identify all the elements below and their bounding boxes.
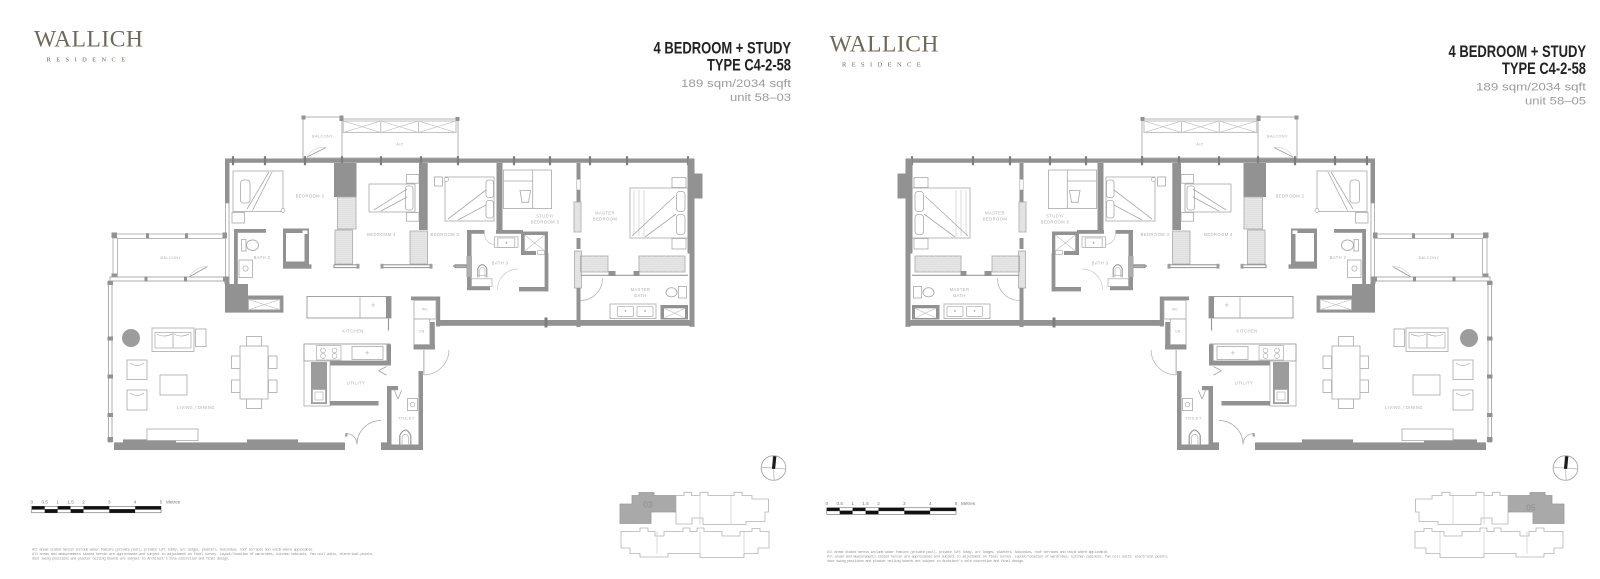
svg-text:unit 58–05: unit 58–05 — [1525, 96, 1586, 108]
svg-text:BALCONY: BALCONY — [1419, 256, 1440, 260]
svg-text:LIVING / DINING: LIVING / DINING — [1385, 405, 1423, 410]
svg-text:STUDY/: STUDY/ — [536, 214, 554, 219]
svg-text:BEDROOM 5: BEDROOM 5 — [531, 220, 560, 225]
svg-text:BEDROOM 2: BEDROOM 2 — [296, 194, 325, 199]
svg-text:STUDY/: STUDY/ — [1046, 214, 1064, 219]
svg-text:BEDROOM 5: BEDROOM 5 — [1041, 220, 1070, 225]
svg-text:BALCONY: BALCONY — [161, 256, 182, 260]
svg-text:4 BEDROOM + STUDY: 4 BEDROOM + STUDY — [1449, 43, 1587, 61]
svg-text:BEDROOM: BEDROOM — [983, 217, 1008, 222]
svg-text:TOILET: TOILET — [398, 416, 414, 421]
svg-text:BEDROOM 3: BEDROOM 3 — [1141, 232, 1170, 237]
svg-text:UTILITY: UTILITY — [1235, 381, 1253, 386]
svg-text:DB: DB — [1175, 330, 1180, 334]
svg-text:MASTER: MASTER — [950, 287, 970, 292]
svg-text:UTILITY: UTILITY — [347, 381, 365, 386]
svg-text:LIVING / DINING: LIVING / DINING — [177, 405, 215, 410]
svg-text:WD: WD — [422, 308, 428, 312]
svg-text:BEDROOM 2: BEDROOM 2 — [1276, 194, 1305, 199]
svg-text:DB: DB — [419, 330, 424, 334]
svg-text:A/C: A/C — [396, 143, 404, 147]
svg-text:TOILET: TOILET — [1185, 416, 1201, 421]
svg-text:BALCONY: BALCONY — [1267, 135, 1288, 139]
svg-text:BATH 3: BATH 3 — [1092, 261, 1109, 266]
svg-text:189 sqm/2034 sqft: 189 sqm/2034 sqft — [1476, 81, 1586, 93]
svg-text:WALLICH: WALLICH — [830, 32, 941, 58]
svg-text:BEDROOM 4: BEDROOM 4 — [1204, 232, 1233, 237]
svg-text:03: 03 — [643, 500, 653, 510]
svg-text:unit 58–03: unit 58–03 — [730, 92, 791, 104]
svg-text:BEDROOM: BEDROOM — [593, 217, 618, 222]
svg-text:KITCHEN: KITCHEN — [1236, 329, 1257, 334]
svg-text:MASTER: MASTER — [631, 287, 651, 292]
svg-text:KITCHEN: KITCHEN — [342, 329, 363, 334]
svg-text:BATH: BATH — [634, 293, 646, 298]
svg-text:BATH 3: BATH 3 — [492, 261, 509, 266]
svg-text:05: 05 — [1526, 503, 1536, 513]
svg-text:BATH: BATH — [953, 293, 965, 298]
svg-text:A/C: A/C — [1196, 143, 1204, 147]
svg-text:MASTER: MASTER — [595, 211, 615, 216]
svg-text:WD: WD — [1172, 308, 1178, 312]
svg-text:4 BEDROOM + STUDY: 4 BEDROOM + STUDY — [654, 40, 792, 58]
svg-text:RESIDENCE: RESIDENCE — [47, 57, 131, 64]
svg-text:BATH 2: BATH 2 — [254, 255, 271, 260]
svg-text:BATH 2: BATH 2 — [1330, 255, 1347, 260]
svg-text:BALCONY: BALCONY — [312, 135, 333, 139]
svg-text:RESIDENCE: RESIDENCE — [842, 62, 926, 69]
svg-text:TYPE C4-2-58: TYPE C4-2-58 — [1502, 60, 1586, 78]
svg-text:MASTER: MASTER — [985, 211, 1005, 216]
svg-text:WALLICH: WALLICH — [34, 27, 145, 53]
svg-text:BEDROOM 3: BEDROOM 3 — [431, 232, 460, 237]
svg-text:BEDROOM 4: BEDROOM 4 — [367, 232, 396, 237]
svg-text:TYPE C4-2-58: TYPE C4-2-58 — [707, 56, 791, 74]
svg-text:189 sqm/2034 sqft: 189 sqm/2034 sqft — [681, 78, 791, 90]
